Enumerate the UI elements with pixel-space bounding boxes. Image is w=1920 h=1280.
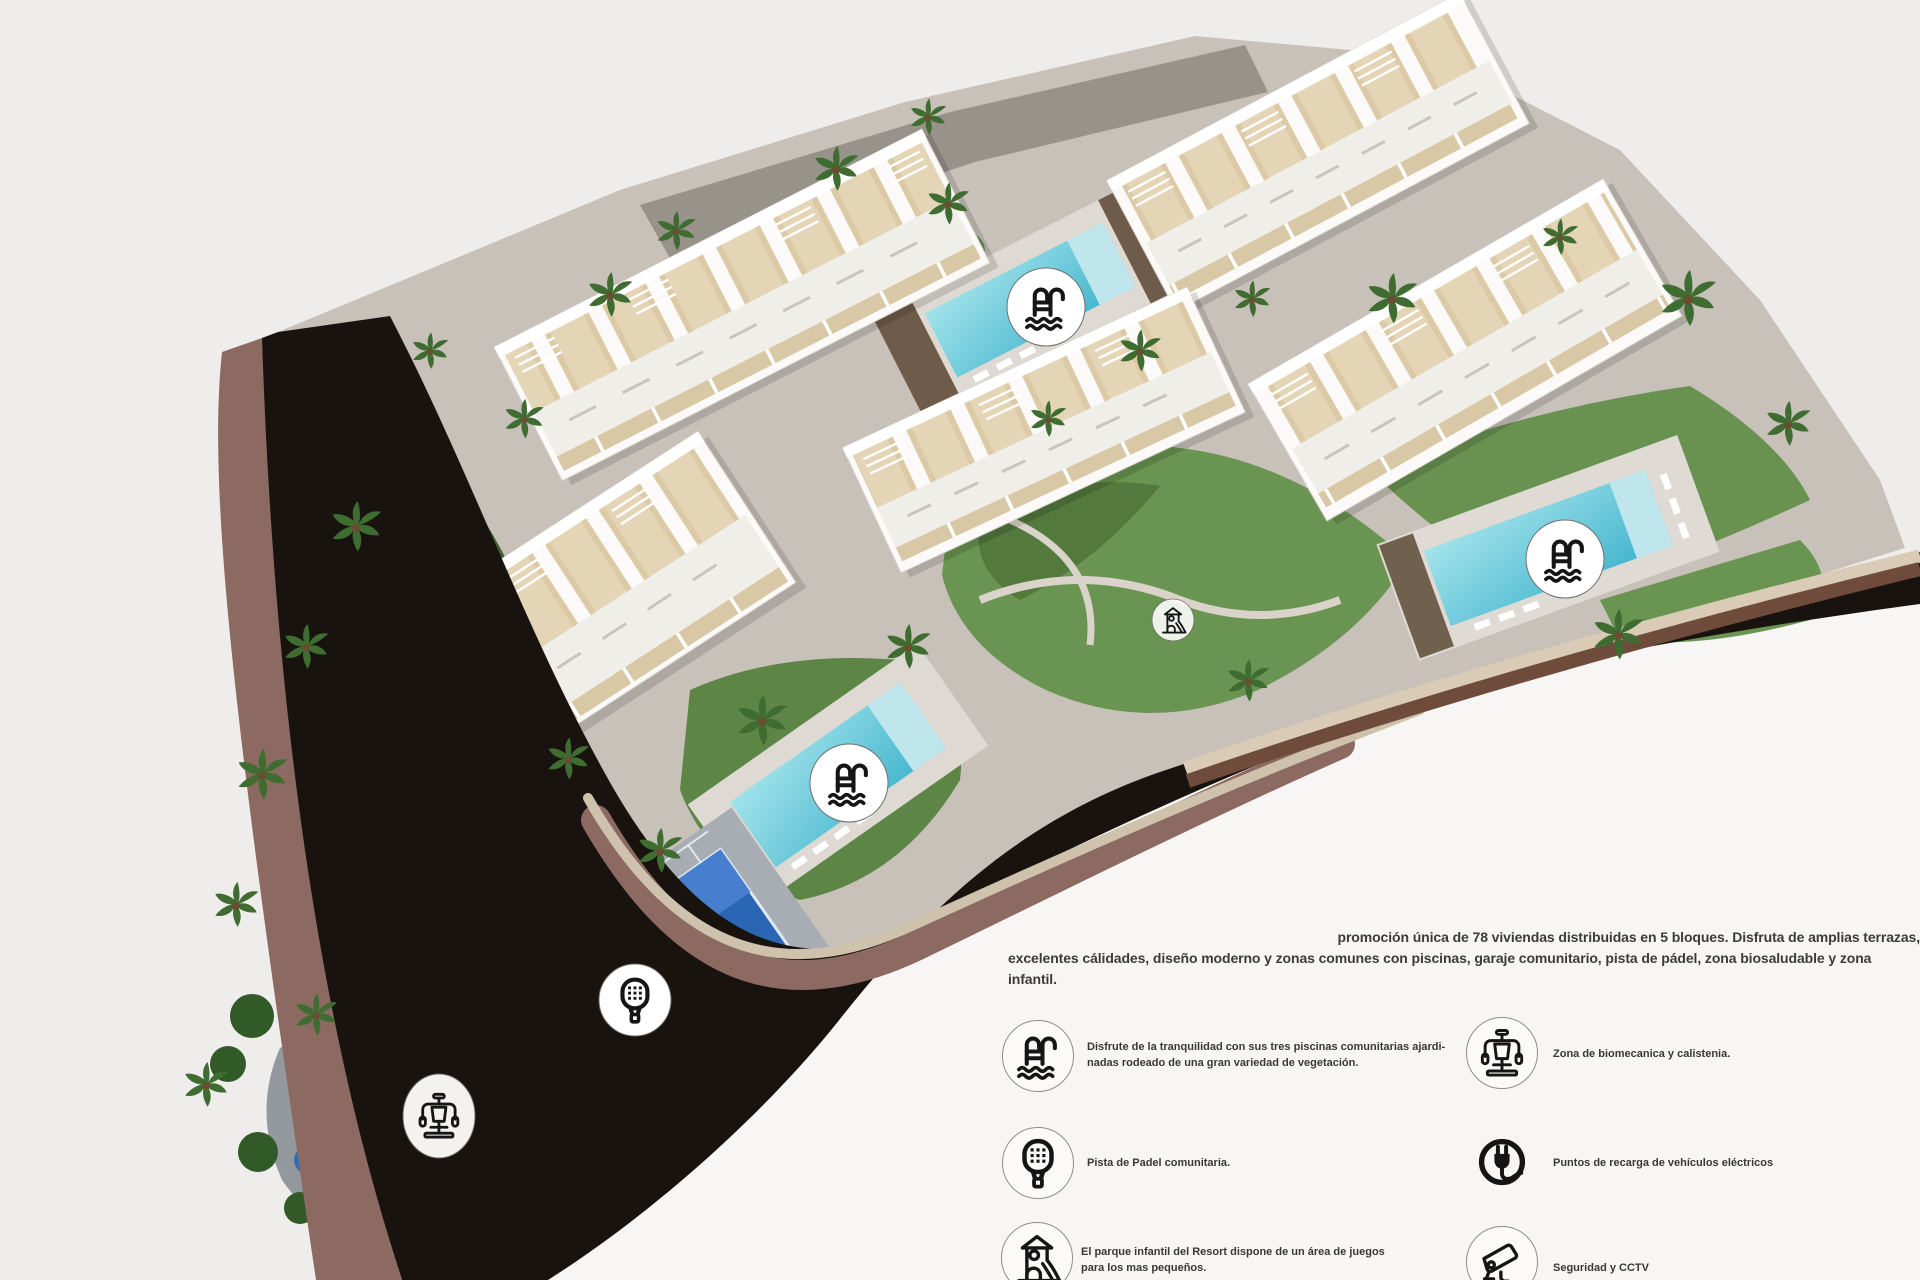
intro-line: promoción única de 78 viviendas distribu… <box>1008 927 1920 948</box>
legend-text: para los mas pequeños. <box>1081 1261 1385 1277</box>
pool-ladder-icon <box>1000 1018 1076 1094</box>
legend-text: Pista de Padel comunitaria. <box>1087 1156 1230 1172</box>
legend-text: El parque infantil del Resort dispone de… <box>1081 1245 1385 1261</box>
legend-text: Seguridad y CCTV <box>1553 1261 1649 1277</box>
intro-paragraph: promoción única de 78 viviendas distribu… <box>1008 927 1920 990</box>
legend-text: Zona de biomecanica y calistenia. <box>1553 1047 1730 1063</box>
legend-item-cctv: Seguridad y CCTV <box>1553 1261 1649 1277</box>
legend-item-pools: Disfrute de la tranquilidad con sus tres… <box>1087 1040 1445 1071</box>
legend-item-biomechanics: Zona de biomecanica y calistenia. <box>1553 1047 1730 1063</box>
intro-line: excelentes cálidades, diseño moderno y z… <box>1008 948 1920 969</box>
resort-siteplan-render: promoción única de 78 viviendas distribu… <box>0 0 1920 1280</box>
legend-item-padel: Pista de Padel comunitaria. <box>1087 1156 1230 1172</box>
playground-icon <box>999 1220 1075 1280</box>
padel-racket-icon <box>1000 1125 1076 1201</box>
legend-text: Puntos de recarga de vehículos eléctrico… <box>1553 1156 1773 1172</box>
legend-text: Disfrute de la tranquilidad con sus tres… <box>1087 1040 1445 1056</box>
intro-line: infantil. <box>1008 969 1920 990</box>
pool-east-badge <box>1526 520 1604 598</box>
playground-garden-badge <box>1152 599 1194 641</box>
legend-text: nadas rodeado de una gran variedad de ve… <box>1087 1056 1445 1072</box>
legend-item-playground: El parque infantil del Resort dispone de… <box>1081 1245 1385 1276</box>
calisthenics-area-badge <box>403 1074 475 1158</box>
padel-court-badge <box>599 964 671 1036</box>
pool-north-badge <box>1007 268 1085 346</box>
siteplan-canvas <box>0 0 1920 1280</box>
ev-plug-icon <box>1464 1124 1540 1200</box>
biomechanics-icon <box>1464 1015 1540 1091</box>
legend-item-ev-charging: Puntos de recarga de vehículos eléctrico… <box>1553 1156 1773 1172</box>
cctv-icon <box>1464 1224 1540 1280</box>
pool-south-badge <box>810 744 888 822</box>
